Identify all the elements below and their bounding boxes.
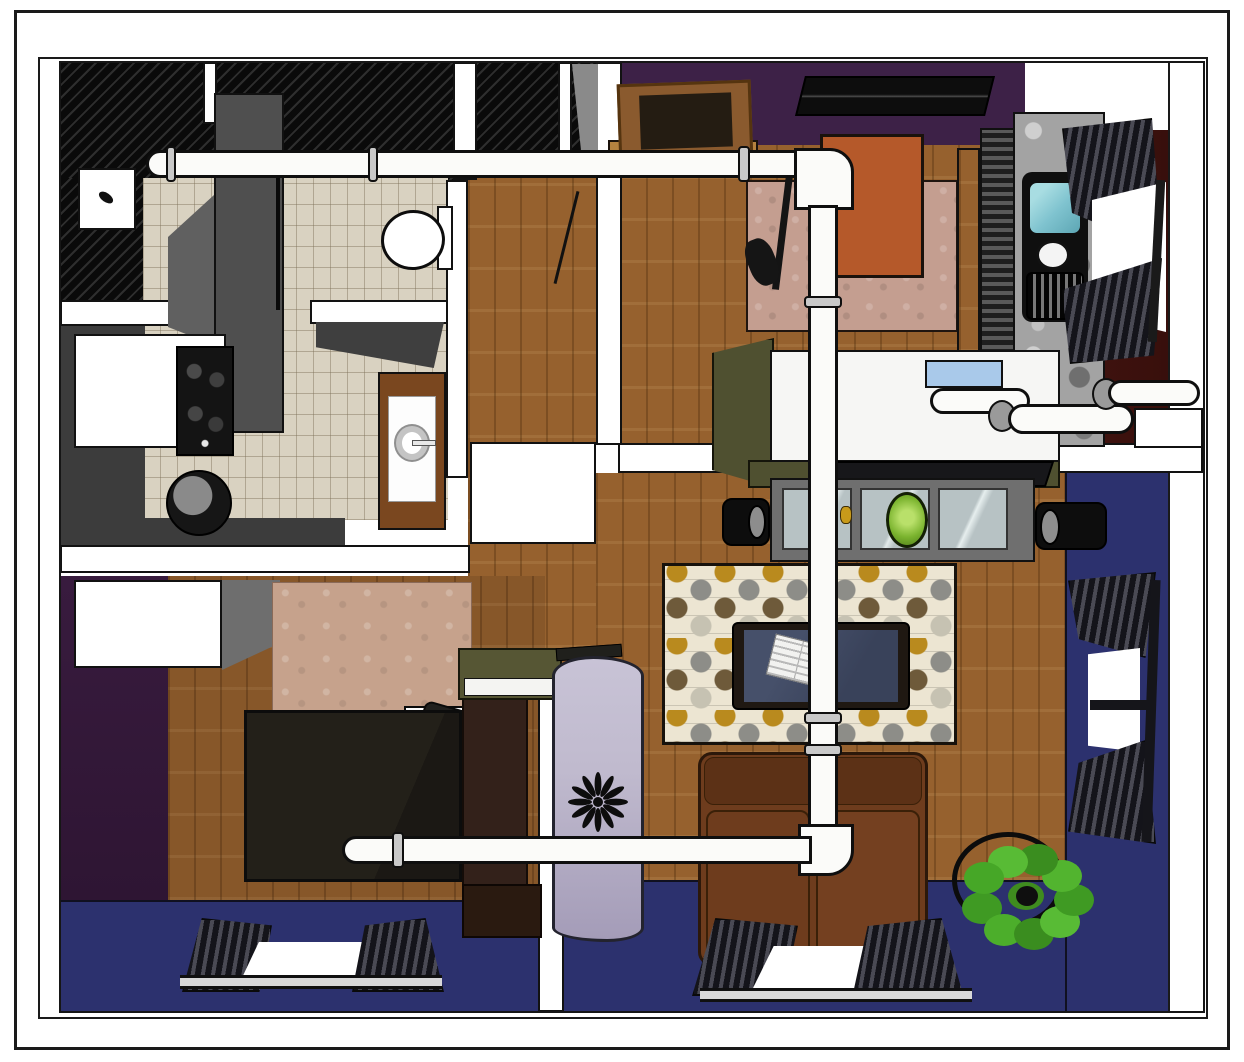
ceiling-vent-panel xyxy=(795,76,995,116)
duct-joint-6 xyxy=(392,832,404,868)
living-window-rail xyxy=(700,988,972,1002)
desk-blue-book xyxy=(925,360,1003,388)
console-gold-ornament xyxy=(840,506,852,524)
hall-open-door-panel xyxy=(470,442,596,544)
bathroom-faucet xyxy=(412,440,436,446)
right-window-cross-bar xyxy=(1090,700,1148,710)
duct-elbow-top xyxy=(794,148,854,210)
duct-lower-horizontal xyxy=(342,836,812,864)
divider-flower-decal xyxy=(566,770,630,834)
duct-joint-4 xyxy=(804,712,842,724)
speaker-right-cone xyxy=(1040,509,1060,545)
wall-bathroom-stub xyxy=(310,300,448,324)
duct-joint-1 xyxy=(368,146,378,182)
window-sill-shelf xyxy=(1134,408,1203,448)
pipe-coupling-c xyxy=(1108,380,1200,406)
right-white-sill-band xyxy=(1168,62,1203,1012)
stove xyxy=(176,346,234,456)
duct-joint-2 xyxy=(738,146,750,182)
bedroom-window-rail xyxy=(180,975,442,989)
apartment-floorplan-rendering xyxy=(0,0,1244,1062)
duct-joint-3 xyxy=(804,296,842,308)
cabinet-handle xyxy=(276,170,280,310)
pipe-coupling-b xyxy=(1008,404,1134,434)
sink-cabinet-wood-strip xyxy=(957,148,980,354)
dresser xyxy=(74,580,222,668)
entry-door-panel xyxy=(639,92,733,149)
trash-can xyxy=(166,470,232,536)
duct-cap-ring-left xyxy=(166,146,176,182)
speaker-left-cone xyxy=(748,505,766,539)
console-glass-right xyxy=(938,488,1008,550)
wall-thin-vertical xyxy=(558,62,572,154)
plant-wire-stand xyxy=(952,832,1064,928)
wall-kitchen-bedroom xyxy=(60,545,470,573)
wreath-plant-center xyxy=(1016,886,1038,906)
duct-top-horizontal xyxy=(146,150,802,178)
duct-joint-5 xyxy=(804,744,842,756)
nightstand xyxy=(462,884,542,938)
bed-olive-cabinet-front xyxy=(464,678,560,696)
kitchen-faucet xyxy=(1036,240,1070,270)
console-green-vase xyxy=(886,492,928,548)
